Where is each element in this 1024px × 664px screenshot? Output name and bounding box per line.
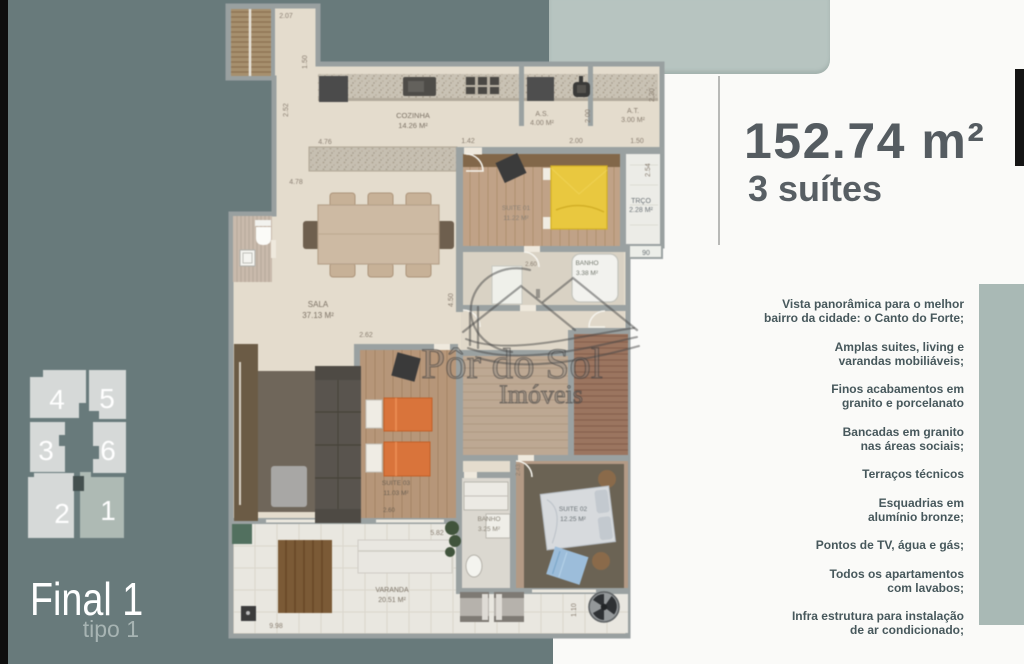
svg-text:11.22 M²: 11.22 M² xyxy=(503,215,529,222)
svg-text:20.51 M²: 20.51 M² xyxy=(378,597,406,604)
svg-text:A.S.: A.S. xyxy=(535,111,548,118)
svg-text:2.28 M²: 2.28 M² xyxy=(629,207,653,214)
svg-text:14.26 M²: 14.26 M² xyxy=(398,121,428,130)
svg-text:4.00 M²: 4.00 M² xyxy=(530,120,554,127)
svg-text:1.50: 1.50 xyxy=(630,138,644,145)
svg-text:SUITE 02: SUITE 02 xyxy=(559,506,588,513)
svg-text:2.54: 2.54 xyxy=(645,163,652,177)
svg-text:3.25 M²: 3.25 M² xyxy=(478,526,501,533)
svg-text:SUITE 03: SUITE 03 xyxy=(382,480,411,487)
svg-text:3.00 M²: 3.00 M² xyxy=(621,117,645,124)
svg-text:2.52: 2.52 xyxy=(283,103,290,117)
svg-text:2.20: 2.20 xyxy=(649,88,656,102)
svg-text:1.10: 1.10 xyxy=(571,603,578,617)
svg-text:2.00: 2.00 xyxy=(585,109,592,123)
svg-text:2.62: 2.62 xyxy=(359,332,373,339)
svg-text:COZINHA: COZINHA xyxy=(396,111,430,120)
svg-text:BANHO: BANHO xyxy=(477,516,500,523)
svg-text:4.78: 4.78 xyxy=(289,179,303,186)
svg-text:A.T.: A.T. xyxy=(627,108,639,115)
svg-text:Imóveis: Imóveis xyxy=(499,380,583,409)
svg-text:5: 5 xyxy=(99,383,115,414)
svg-text:11.03 M²: 11.03 M² xyxy=(383,490,409,497)
svg-text:6: 6 xyxy=(100,435,116,466)
svg-text:2.43: 2.43 xyxy=(516,464,522,476)
svg-text:2: 2 xyxy=(54,498,70,529)
svg-text:5.82: 5.82 xyxy=(430,530,444,537)
svg-text:2.00: 2.00 xyxy=(569,138,583,145)
svg-text:TRÇO: TRÇO xyxy=(631,198,651,205)
svg-text:VARANDA: VARANDA xyxy=(375,587,409,594)
svg-text:2.07: 2.07 xyxy=(279,13,293,20)
svg-text:12.25 M²: 12.25 M² xyxy=(560,516,586,523)
svg-text:3: 3 xyxy=(38,435,54,466)
svg-text:1: 1 xyxy=(100,495,116,526)
svg-text:3.38 M²: 3.38 M² xyxy=(576,270,599,277)
svg-text:37.13 M²: 37.13 M² xyxy=(302,311,334,320)
svg-text:1.42: 1.42 xyxy=(461,138,475,145)
svg-text:4: 4 xyxy=(49,384,65,415)
svg-text:9.98: 9.98 xyxy=(269,623,283,630)
svg-text:4.76: 4.76 xyxy=(318,139,332,146)
svg-text:1.50: 1.50 xyxy=(302,55,309,69)
svg-text:BANHO: BANHO xyxy=(575,260,598,267)
svg-text:SUITE 01: SUITE 01 xyxy=(502,205,531,212)
svg-text:4.50: 4.50 xyxy=(448,293,455,307)
svg-text:SALA: SALA xyxy=(308,300,329,309)
svg-text:2.60: 2.60 xyxy=(525,262,537,268)
svg-text:2.60: 2.60 xyxy=(383,508,395,514)
svg-text:90: 90 xyxy=(642,250,650,257)
